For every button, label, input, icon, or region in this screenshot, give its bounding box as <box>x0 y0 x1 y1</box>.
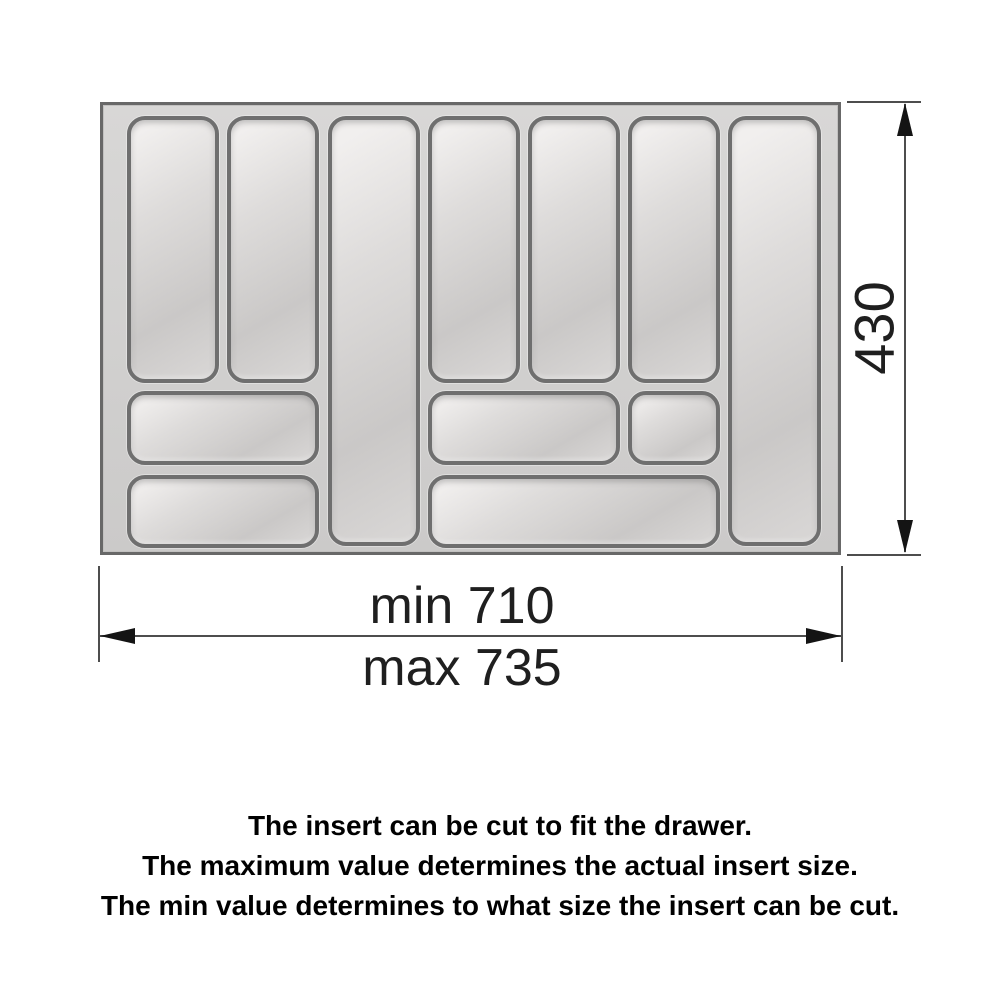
tray-compartment-slot-7-tall <box>728 116 821 546</box>
arrow-right-icon <box>806 628 841 644</box>
height-dimension-label: 430 <box>842 281 907 374</box>
arrow-left-icon <box>100 628 135 644</box>
tray-compartment-slot-1 <box>127 116 219 383</box>
caption-line-1: The insert can be cut to fit the drawer. <box>0 806 1000 846</box>
tray-compartment-slot-6 <box>628 116 720 383</box>
tray-compartment-slot-3-tall <box>328 116 420 546</box>
caption-line-2: The maximum value determines the actual … <box>0 846 1000 886</box>
arrow-down-icon <box>897 520 913 553</box>
tray-compartment-slot-2 <box>227 116 319 383</box>
tray-compartment-box-mid-small <box>628 391 720 465</box>
tray-compartment-box-mid-center <box>428 391 620 465</box>
width-extension-line-left <box>98 566 100 662</box>
cutlery-tray <box>100 102 841 555</box>
tray-surface <box>103 105 838 552</box>
width-min-label: min 710 <box>370 576 555 636</box>
caption-line-3: The min value determines to what size th… <box>0 886 1000 926</box>
caption-block: The insert can be cut to fit the drawer.… <box>0 806 1000 926</box>
tray-compartment-box-bottom-long <box>428 475 720 548</box>
tray-compartment-box-bottom-left <box>127 475 319 548</box>
diagram-canvas: 430 min 710 max 735 The insert can be cu… <box>0 0 1000 1000</box>
tray-compartment-slot-5 <box>528 116 620 383</box>
width-max-label: max 735 <box>362 638 561 698</box>
width-extension-line-right <box>841 566 843 662</box>
tray-compartment-box-mid-left <box>127 391 319 465</box>
arrow-up-icon <box>897 103 913 136</box>
height-extension-line-bottom <box>847 554 921 556</box>
tray-compartment-slot-4 <box>428 116 520 383</box>
